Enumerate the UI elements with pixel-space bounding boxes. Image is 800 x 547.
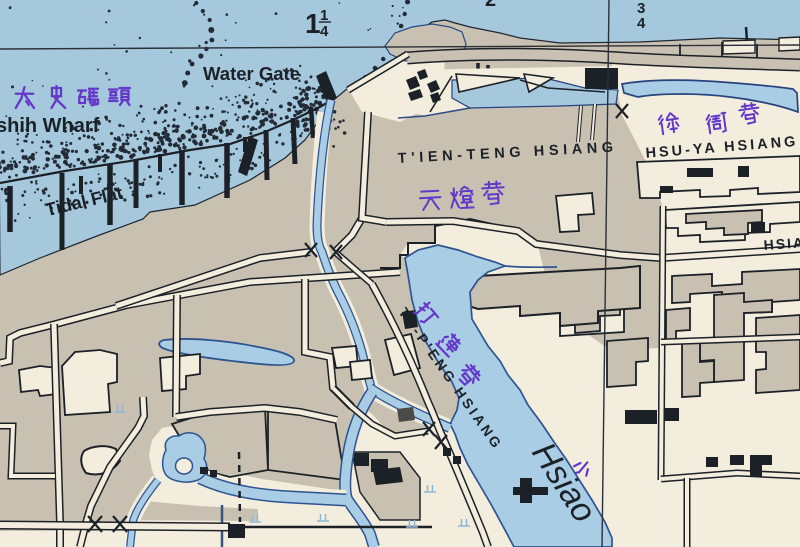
svg-text:shih Wharf: shih Wharf — [0, 115, 100, 137]
svg-text:4: 4 — [637, 15, 646, 32]
svg-text:1: 1 — [305, 8, 321, 39]
svg-text:Water Gate: Water Gate — [203, 63, 300, 84]
svg-text:4: 4 — [320, 23, 329, 40]
svg-text:2: 2 — [485, 0, 496, 11]
